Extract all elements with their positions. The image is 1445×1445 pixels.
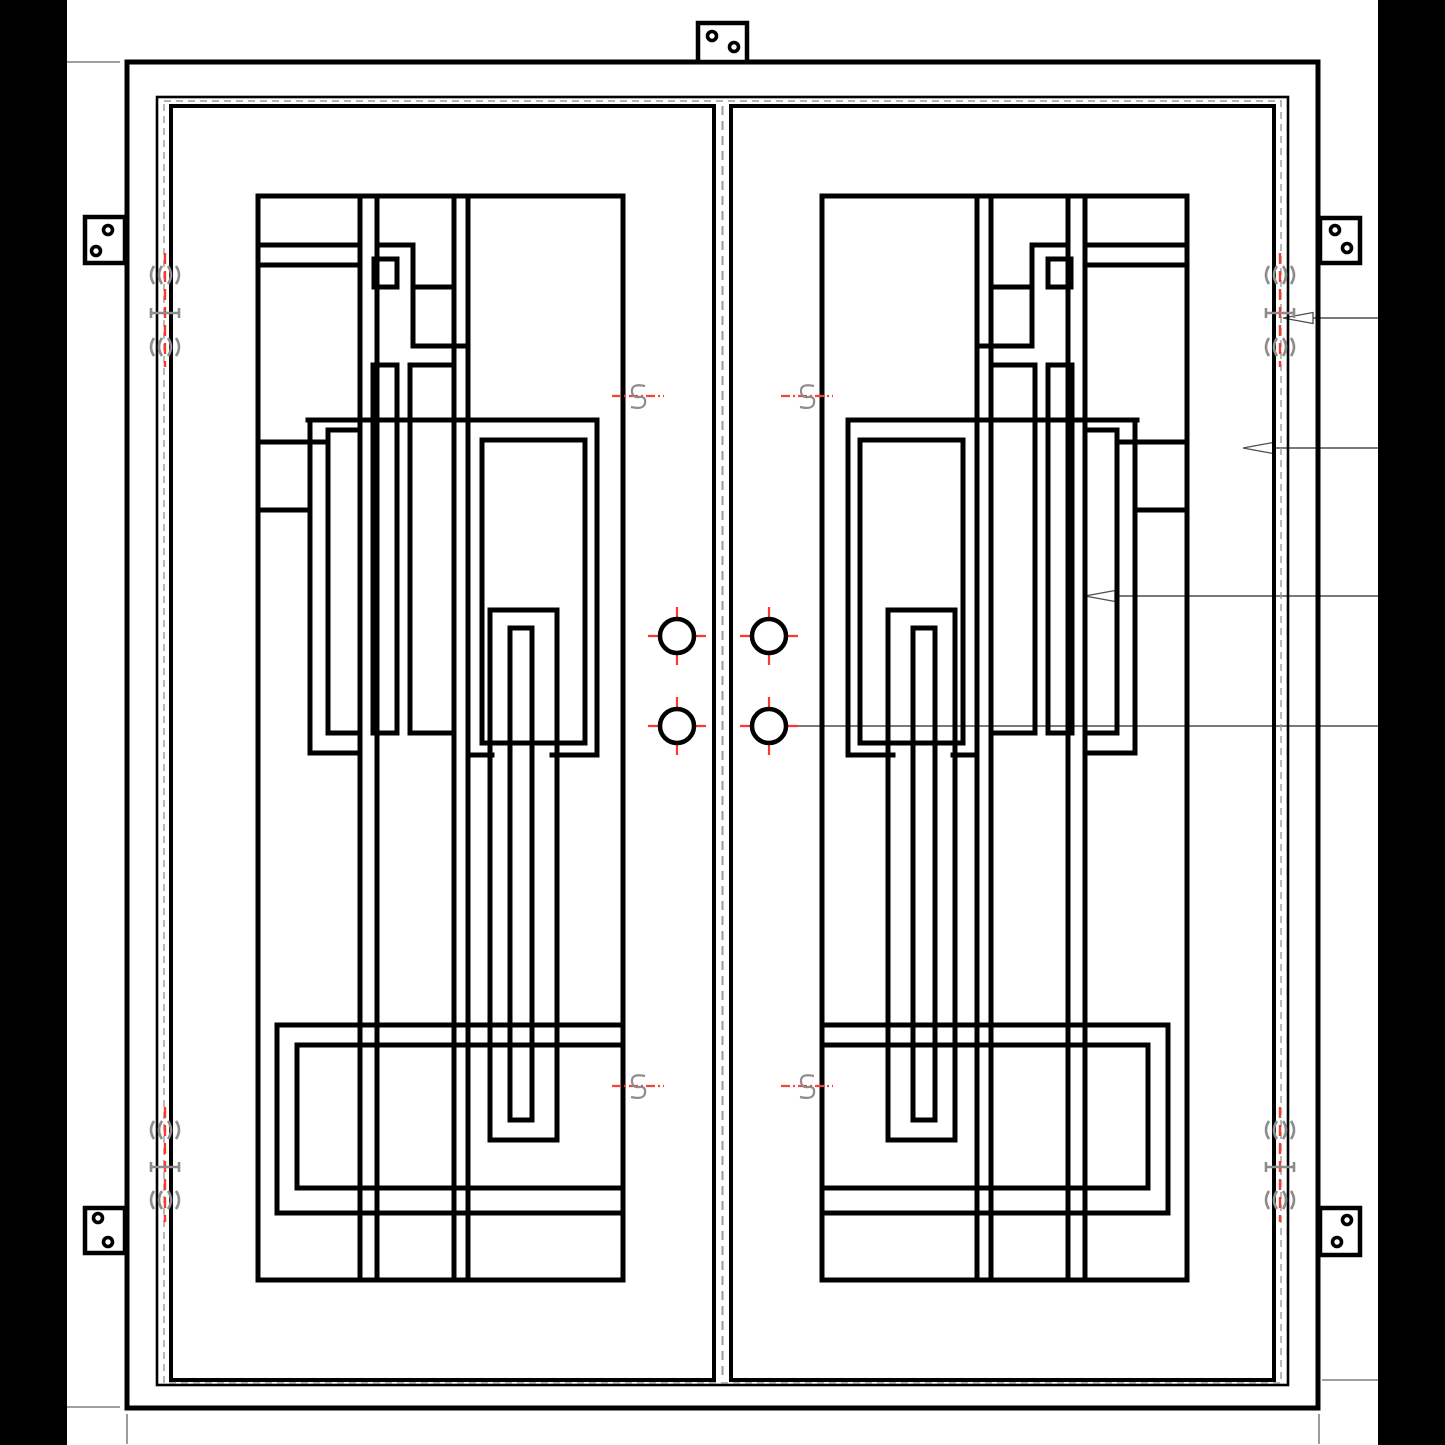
mounting-tab-right-bottom: [1320, 1208, 1360, 1255]
black-border-right: [1378, 0, 1445, 1445]
black-border-left: [0, 0, 67, 1445]
mounting-tab-left-top: [85, 217, 125, 263]
mounting-tab-right-top-plate: [1320, 218, 1360, 263]
mounting-tab-left-top-screw-hole-1: [104, 226, 113, 235]
handle-bore-circle: [660, 619, 694, 653]
door-elevation-drawing: [0, 0, 1445, 1445]
drawing-sheet: [0, 0, 1445, 1445]
handle-bore-circle: [660, 709, 694, 743]
handle-bore-circle: [752, 709, 786, 743]
mounting-tab-left-top-plate: [85, 217, 125, 263]
handle-bore-circle: [752, 619, 786, 653]
mounting-tab-top-center: [698, 23, 747, 62]
mounting-tab-right-top-screw-hole-1: [1331, 226, 1340, 235]
mounting-tab-right-top: [1320, 218, 1360, 263]
mounting-tab-left-bottom: [85, 1208, 125, 1253]
mounting-tab-left-top-screw-hole-2: [92, 247, 101, 256]
mounting-tab-right-top-screw-hole-2: [1343, 244, 1352, 253]
mounting-tab-left-bottom-screw-hole-2: [104, 1238, 113, 1247]
mounting-tab-top-center-screw-hole-1: [708, 32, 717, 41]
mounting-tab-right-bottom-plate: [1320, 1208, 1360, 1255]
mounting-tab-right-bottom-screw-hole-2: [1333, 1238, 1342, 1247]
mounting-tab-right-bottom-screw-hole-1: [1343, 1216, 1352, 1225]
mounting-tab-top-center-plate: [698, 23, 747, 62]
mounting-tab-top-center-screw-hole-2: [730, 43, 739, 52]
mounting-tab-left-bottom-screw-hole-1: [94, 1214, 103, 1223]
